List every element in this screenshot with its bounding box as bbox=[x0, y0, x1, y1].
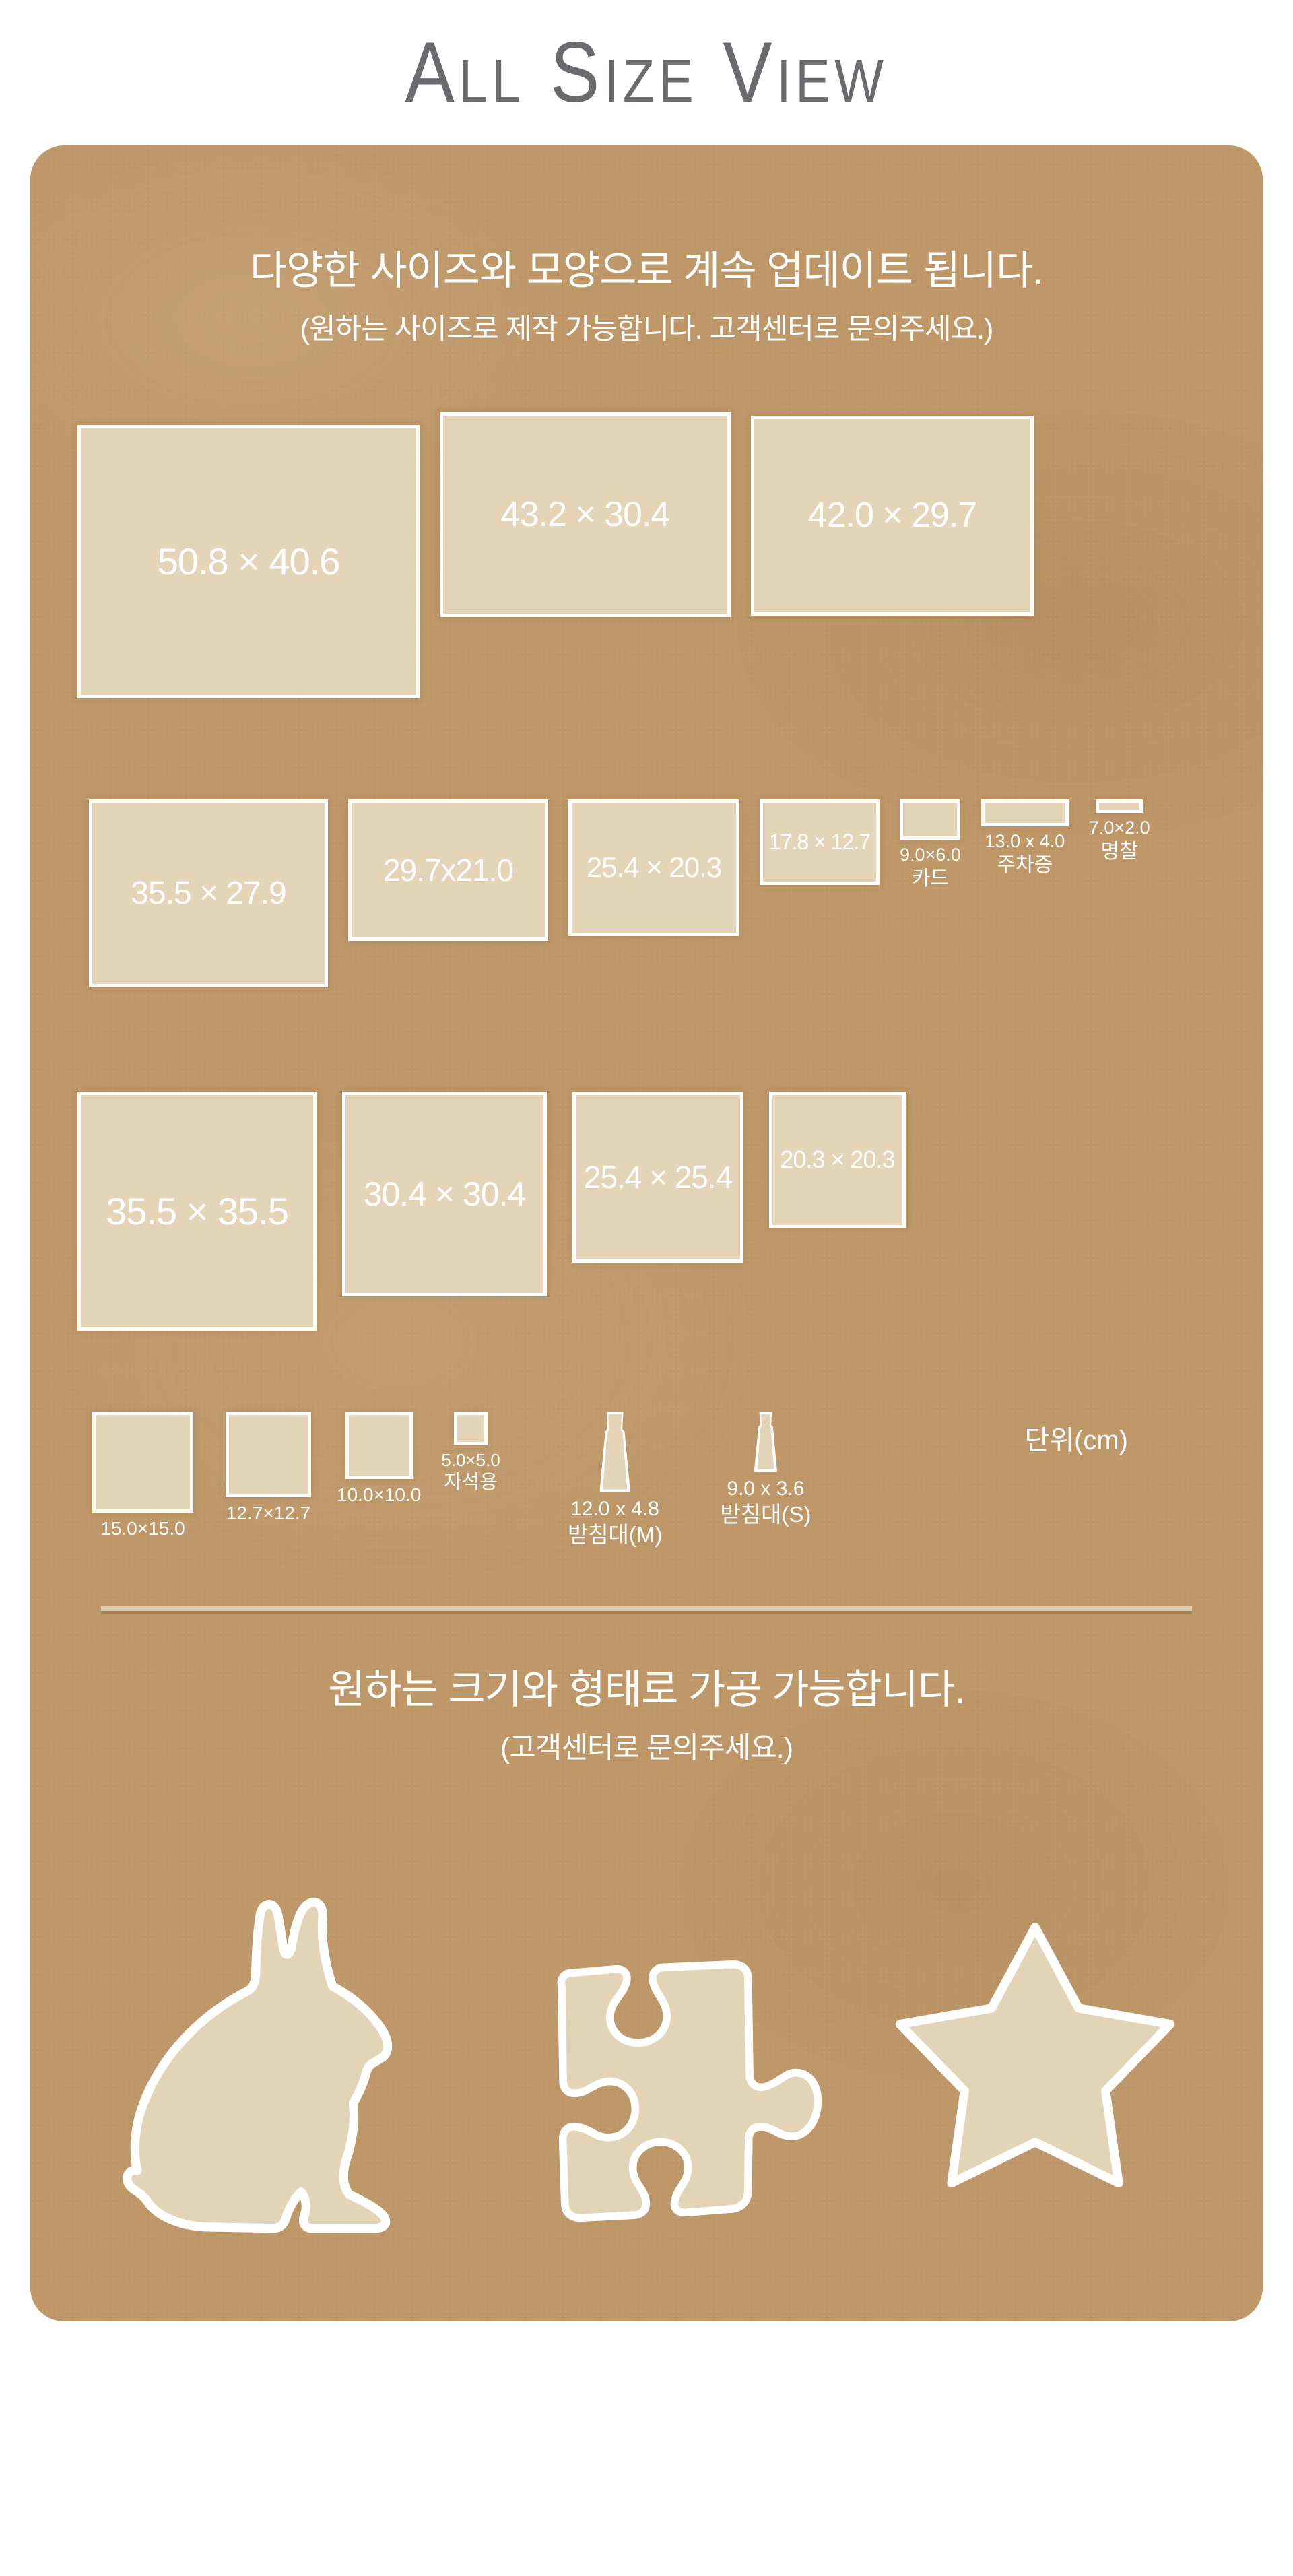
size-board-label: 5.0×5.0 bbox=[441, 1449, 500, 1472]
size-board-caption: 명찰 bbox=[1101, 840, 1138, 864]
size-board bbox=[454, 1412, 488, 1445]
size-item: 35.5 × 35.5 bbox=[77, 1092, 317, 1331]
star-icon bbox=[877, 1914, 1193, 2210]
size-board-label: 12.0 x 4.8 bbox=[570, 1496, 659, 1522]
size-board-caption: 받침대(M) bbox=[568, 1521, 663, 1548]
size-board-label: 35.5 × 35.5 bbox=[106, 1189, 288, 1233]
divider-highlight bbox=[101, 1606, 1192, 1611]
size-item: 50.8 × 40.6 bbox=[77, 425, 420, 698]
size-item: 25.4 × 20.3 bbox=[568, 799, 739, 936]
intro-heading: 다양한 사이즈와 모양으로 계속 업데이트 됩니다. bbox=[30, 246, 1263, 295]
size-item: 17.8 × 12.7 bbox=[760, 799, 880, 885]
star-shape bbox=[877, 1914, 1193, 2210]
size-board: 17.8 × 12.7 bbox=[760, 799, 880, 885]
size-board-label: 10.0×10.0 bbox=[337, 1483, 421, 1507]
intro-subheading: (원하는 사이즈로 제작 가능합니다. 고객센터로 문의주세요.) bbox=[30, 306, 1263, 348]
kraft-panel-content: 다양한 사이즈와 모양으로 계속 업데이트 됩니다. (원하는 사이즈로 제작 … bbox=[30, 145, 1263, 2321]
size-row-1: 50.8 × 40.643.2 × 30.442.0 × 29.7 bbox=[77, 412, 1263, 698]
stand-shape-fill bbox=[602, 1414, 628, 1490]
size-item: 25.4 × 25.4 bbox=[572, 1092, 743, 1263]
size-board-caption: 카드 bbox=[912, 867, 949, 891]
size-board: 35.5 × 27.9 bbox=[89, 799, 328, 987]
custom-section: 원하는 크기와 형태로 가공 가능합니다. (고객센터로 문의주세요.) bbox=[30, 1665, 1263, 1766]
size-board: 25.4 × 20.3 bbox=[568, 799, 739, 936]
size-item: 42.0 × 29.7 bbox=[751, 416, 1034, 616]
custom-subheading: (고객센터로 문의주세요.) bbox=[30, 1725, 1263, 1766]
stand-shape bbox=[754, 1412, 778, 1472]
size-item: 15.0×15.0 bbox=[92, 1412, 193, 1540]
size-board-caption: 자석용 bbox=[444, 1471, 498, 1494]
size-item: 5.0×5.0자석용 bbox=[441, 1412, 500, 1494]
custom-shapes-row bbox=[112, 1891, 1263, 2241]
size-board-label: 13.0 x 4.0 bbox=[985, 830, 1065, 853]
size-item: 12.7×12.7 bbox=[226, 1412, 311, 1525]
size-board-label: 43.2 × 30.4 bbox=[501, 494, 670, 535]
size-board: 43.2 × 30.4 bbox=[440, 412, 731, 617]
intro-section: 다양한 사이즈와 모양으로 계속 업데이트 됩니다. (원하는 사이즈로 제작 … bbox=[30, 145, 1263, 348]
kraft-panel: 다양한 사이즈와 모양으로 계속 업데이트 됩니다. (원하는 사이즈로 제작 … bbox=[30, 145, 1263, 2321]
size-board-label: 35.5 × 27.9 bbox=[131, 875, 286, 912]
puzzle-shape bbox=[505, 1941, 839, 2241]
size-board-label: 20.3 × 20.3 bbox=[780, 1146, 894, 1174]
size-item: 20.3 × 20.3 bbox=[769, 1092, 906, 1228]
size-item: 29.7x21.0 bbox=[348, 799, 548, 941]
size-board: 50.8 × 40.6 bbox=[77, 425, 420, 698]
size-board bbox=[226, 1412, 311, 1497]
unit-label: 단위(cm) bbox=[1024, 1418, 1128, 1457]
page-title: All Size View bbox=[45, 26, 1248, 121]
rabbit-icon bbox=[112, 1891, 455, 2239]
size-board-label: 17.8 × 12.7 bbox=[769, 830, 870, 855]
size-board: 35.5 × 35.5 bbox=[77, 1092, 317, 1331]
size-row-4-wrapper: 15.0×15.012.7×12.710.0×10.05.0×5.0자석용12.… bbox=[30, 1412, 1263, 1548]
size-board bbox=[900, 799, 960, 840]
size-board-label: 15.0×15.0 bbox=[100, 1517, 185, 1540]
size-board bbox=[981, 799, 1069, 826]
section-divider bbox=[101, 1606, 1192, 1614]
size-row-2: 35.5 × 27.929.7x21.025.4 × 20.317.8 × 12… bbox=[89, 799, 1263, 987]
size-board bbox=[1096, 799, 1143, 813]
size-board bbox=[92, 1412, 193, 1513]
size-board: 20.3 × 20.3 bbox=[769, 1092, 906, 1228]
size-item: 9.0 x 3.6받침대(S) bbox=[720, 1412, 811, 1528]
size-board-label: 25.4 × 20.3 bbox=[587, 851, 721, 884]
size-board-label: 9.0 x 3.6 bbox=[727, 1476, 804, 1502]
size-item: 43.2 × 30.4 bbox=[440, 412, 731, 617]
size-board: 29.7x21.0 bbox=[348, 799, 548, 941]
size-board-label: 12.7×12.7 bbox=[226, 1501, 310, 1525]
size-item: 12.0 x 4.8받침대(M) bbox=[568, 1412, 663, 1548]
stand-shape bbox=[599, 1412, 631, 1492]
size-board-label: 42.0 × 29.7 bbox=[808, 495, 977, 535]
divider-shadow bbox=[101, 1611, 1192, 1614]
rabbit-shape bbox=[112, 1891, 455, 2239]
size-row-3: 35.5 × 35.530.4 × 30.425.4 × 25.420.3 × … bbox=[77, 1092, 1263, 1331]
size-board: 30.4 × 30.4 bbox=[342, 1092, 547, 1296]
size-board: 25.4 × 25.4 bbox=[572, 1092, 743, 1263]
size-board-label: 50.8 × 40.6 bbox=[158, 539, 340, 583]
size-board-label: 25.4 × 25.4 bbox=[584, 1159, 732, 1195]
size-board-label: 7.0×2.0 bbox=[1089, 817, 1150, 840]
size-board-label: 9.0×6.0 bbox=[900, 844, 961, 867]
size-board-caption: 받침대(S) bbox=[720, 1501, 811, 1528]
size-board-label: 30.4 × 30.4 bbox=[364, 1175, 526, 1214]
size-item: 13.0 x 4.0주차증 bbox=[981, 799, 1069, 878]
size-item: 35.5 × 27.9 bbox=[89, 799, 328, 987]
size-item: 10.0×10.0 bbox=[337, 1412, 421, 1507]
size-item: 7.0×2.0명찰 bbox=[1089, 799, 1150, 864]
size-item: 9.0×6.0카드 bbox=[900, 799, 961, 891]
size-board-caption: 주차증 bbox=[997, 853, 1053, 878]
size-board bbox=[345, 1412, 413, 1479]
size-item: 30.4 × 30.4 bbox=[342, 1092, 547, 1296]
stand-shape-fill bbox=[757, 1414, 774, 1469]
custom-heading: 원하는 크기와 형태로 가공 가능합니다. bbox=[30, 1665, 1263, 1714]
size-board-label: 29.7x21.0 bbox=[383, 852, 513, 888]
puzzle-icon bbox=[505, 1941, 839, 2241]
size-board: 42.0 × 29.7 bbox=[751, 416, 1034, 616]
